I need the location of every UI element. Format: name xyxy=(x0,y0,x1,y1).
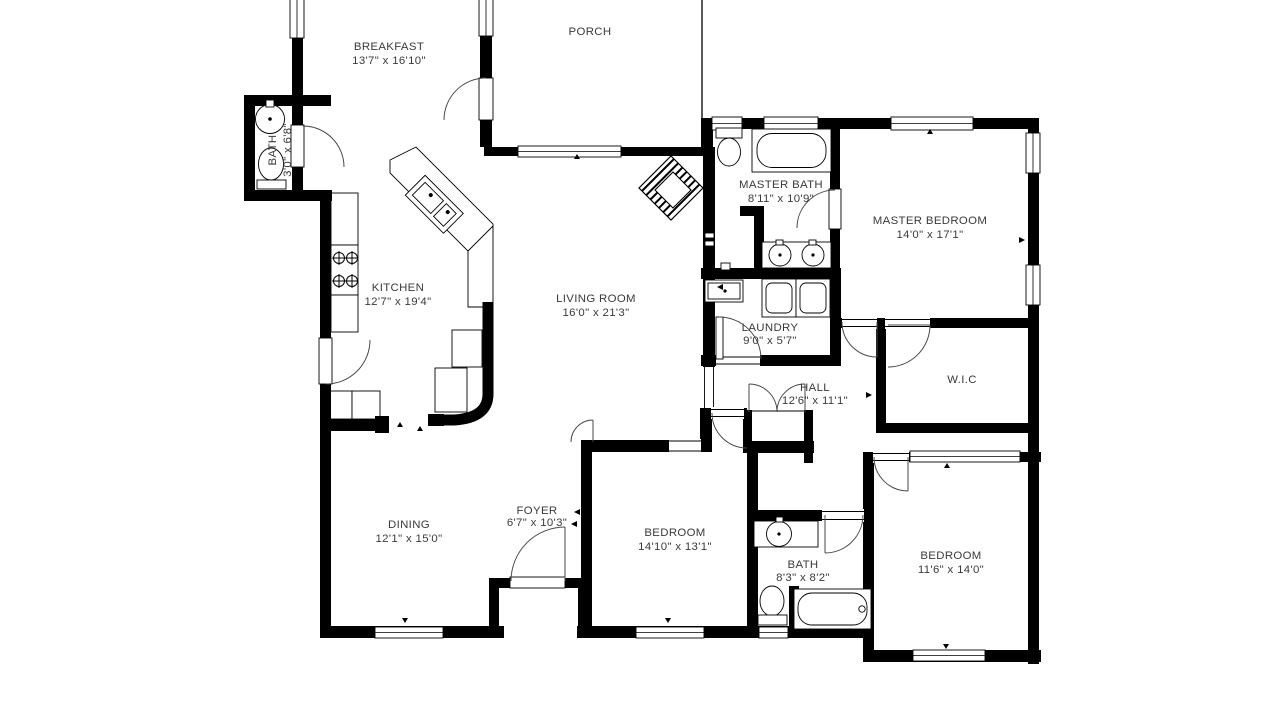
dryer-icon xyxy=(796,279,830,317)
window-icon xyxy=(910,451,1020,462)
room-label-hall: HALL xyxy=(800,382,830,394)
door-icon xyxy=(291,125,344,167)
room-label-kitchen: KITCHEN xyxy=(372,282,424,294)
room-labels: BREAKFAST 13'7" x 16'10" PORCH BATH 3'0"… xyxy=(267,26,987,584)
room-label-breakfast: BREAKFAST xyxy=(354,41,424,53)
room-dims-foyer: 6'7" x 10'3" xyxy=(507,517,567,529)
room-label-bath-small: BATH xyxy=(267,135,279,166)
room-dims-dining: 12'1" x 15'0" xyxy=(375,533,442,545)
window-icon xyxy=(759,627,788,638)
window-icon xyxy=(891,117,973,130)
room-dims-master-bedroom: 14'0" x 17'1" xyxy=(896,229,963,241)
door-icon xyxy=(711,407,747,448)
floorplan-drawing: BREAKFAST 13'7" x 16'10" PORCH BATH 3'0"… xyxy=(0,0,1280,720)
window-icon xyxy=(636,627,704,638)
room-dims-breakfast: 13'7" x 16'10" xyxy=(352,55,426,67)
room-dims-master-bath: 8'11" x 10'9" xyxy=(748,193,814,205)
window-icon xyxy=(913,650,985,661)
floorplan-canvas: BREAKFAST 13'7" x 16'10" PORCH BATH 3'0"… xyxy=(0,0,1280,720)
vanity-icon xyxy=(754,517,818,547)
room-label-dining: DINING xyxy=(388,519,430,531)
door-icon xyxy=(319,338,370,384)
room-label-foyer: FOYER xyxy=(517,505,558,517)
room-dims-laundry: 9'0" x 5'7" xyxy=(743,335,797,347)
room-dims-bedroom-1: 14'10" x 13'1" xyxy=(638,541,712,553)
room-label-porch: PORCH xyxy=(569,26,612,38)
washer-icon xyxy=(762,279,796,317)
room-label-laundry: LAUNDRY xyxy=(742,322,799,334)
door-icon xyxy=(822,509,864,553)
window-icon xyxy=(1026,265,1040,305)
double-vanity-icon xyxy=(762,240,831,268)
window-icon xyxy=(290,0,304,38)
room-label-living-room: LIVING ROOM xyxy=(556,293,636,305)
room-dims-living-room: 16'0" x 21'3" xyxy=(562,307,629,319)
room-label-wic: W.I.C xyxy=(947,374,977,386)
room-dims-bath-2: 8'3" x 8'2" xyxy=(776,572,830,584)
door-icon xyxy=(510,527,565,588)
window-icon xyxy=(1026,133,1040,173)
door-icon xyxy=(444,78,493,120)
room-label-master-bath: MASTER BATH xyxy=(739,179,823,191)
room-label-master-bedroom: MASTER BEDROOM xyxy=(873,215,987,227)
door-icon xyxy=(885,317,930,367)
fireplace-icon xyxy=(639,156,703,220)
room-dims-kitchen: 12'7" x 19'4" xyxy=(364,296,431,308)
room-dims-hall: 12'6" x 11'1" xyxy=(782,395,848,407)
room-label-bedroom-1: BEDROOM xyxy=(644,527,705,539)
window-icon xyxy=(764,117,818,130)
toilet-icon xyxy=(758,586,787,625)
room-dims-bedroom-2: 11'6" x 14'0" xyxy=(918,564,984,576)
toilet-icon xyxy=(716,128,742,166)
room-label-bath-2: BATH xyxy=(788,559,819,571)
door-icon xyxy=(873,451,909,491)
room-dims-bath-small: 3'0" x 6'8" xyxy=(282,123,294,177)
door-icon xyxy=(571,420,593,442)
door-icon xyxy=(842,317,877,357)
bathtub-icon xyxy=(794,589,871,629)
room-label-bedroom-2: BEDROOM xyxy=(920,550,981,562)
window-icon xyxy=(518,146,621,157)
window-icon xyxy=(479,0,493,36)
bathtub-icon xyxy=(752,129,831,172)
window-icon xyxy=(375,627,443,638)
